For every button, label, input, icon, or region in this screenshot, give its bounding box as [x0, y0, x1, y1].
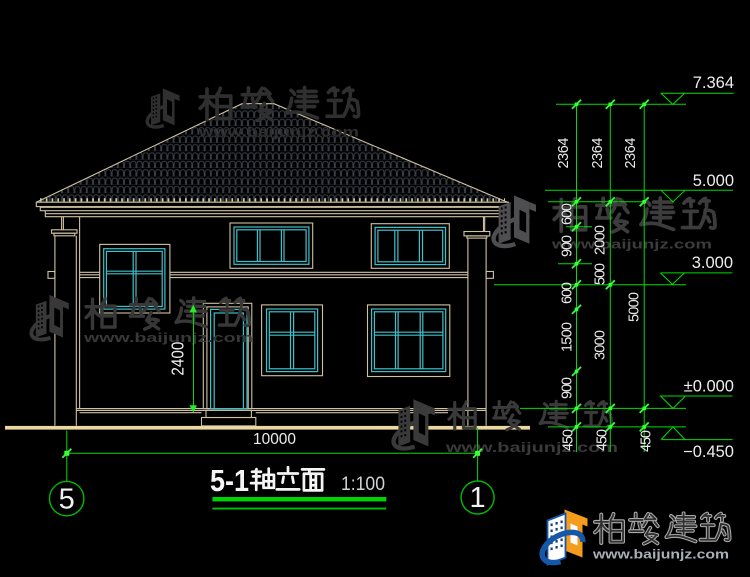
svg-text:www.baijunjz.com: www.baijunjz.com — [445, 440, 619, 455]
svg-text:10000: 10000 — [253, 431, 296, 448]
svg-text:www.baijunjz.com: www.baijunjz.com — [198, 125, 359, 140]
svg-text:600: 600 — [560, 282, 576, 304]
svg-text:3000: 3000 — [593, 330, 609, 360]
svg-text:www.baijunjz.com: www.baijunjz.com — [592, 548, 729, 562]
svg-text:2364: 2364 — [556, 138, 572, 169]
svg-text:2364: 2364 — [590, 138, 606, 169]
svg-text:450: 450 — [639, 430, 655, 452]
svg-text:2364: 2364 — [623, 138, 639, 169]
svg-text:500: 500 — [593, 263, 609, 285]
svg-text:2000: 2000 — [593, 225, 609, 255]
svg-text:1: 1 — [470, 482, 486, 514]
svg-text:3.000: 3.000 — [692, 254, 733, 272]
svg-text:900: 900 — [560, 235, 576, 257]
svg-text:5-1: 5-1 — [210, 463, 249, 498]
svg-text:−0.450: −0.450 — [683, 443, 734, 461]
svg-text:5000: 5000 — [627, 292, 643, 322]
svg-text:5: 5 — [59, 483, 75, 515]
svg-text:450: 450 — [561, 429, 577, 451]
svg-text:1500: 1500 — [560, 322, 576, 352]
svg-text:±0.000: ±0.000 — [684, 378, 734, 396]
svg-text:1:100: 1:100 — [341, 473, 385, 495]
svg-text:900: 900 — [560, 377, 576, 399]
svg-text:7.364: 7.364 — [693, 74, 734, 92]
svg-text:600: 600 — [560, 203, 576, 225]
svg-text:5.000: 5.000 — [693, 172, 734, 190]
svg-text:450: 450 — [595, 429, 611, 451]
svg-text:2400: 2400 — [168, 341, 188, 375]
